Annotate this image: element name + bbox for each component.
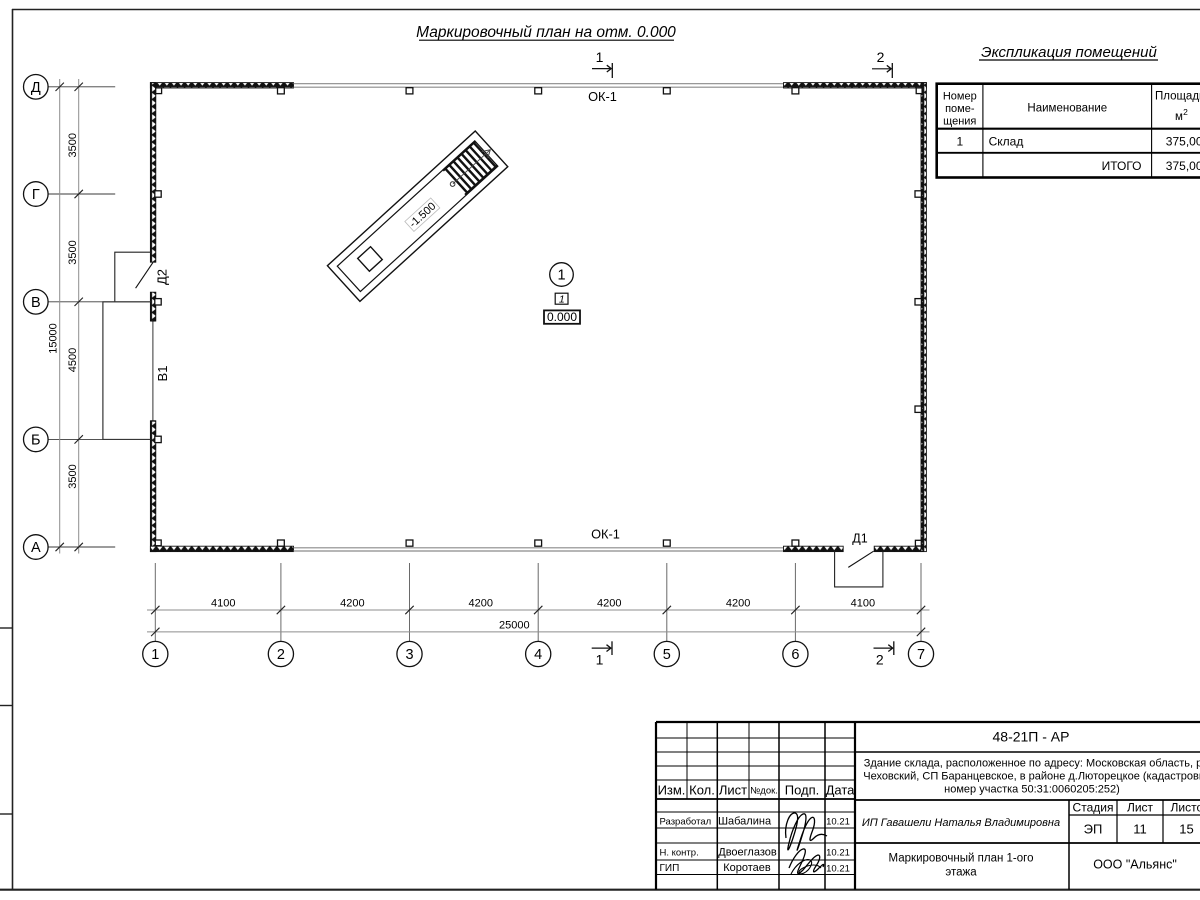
- svg-text:В1: В1: [155, 366, 170, 382]
- svg-text:щения: щения: [943, 116, 976, 128]
- svg-text:1: 1: [559, 294, 565, 306]
- svg-text:Маркировочный план 1-ого: Маркировочный план 1-ого: [889, 853, 1034, 865]
- svg-text:375,00: 375,00: [1166, 135, 1200, 149]
- svg-text:Номер: Номер: [943, 91, 977, 103]
- svg-text:поме-: поме-: [945, 103, 975, 115]
- svg-text:4100: 4100: [851, 597, 875, 609]
- svg-text:2: 2: [1183, 107, 1188, 117]
- svg-text:Изм.: Изм.: [658, 783, 686, 798]
- svg-text:Г: Г: [32, 187, 40, 203]
- svg-text:4: 4: [534, 647, 542, 663]
- svg-text:Кол.: Кол.: [689, 783, 715, 798]
- svg-text:номер участка 50:31:0060205:25: номер участка 50:31:0060205:252): [944, 783, 1120, 795]
- svg-text:Лист: Лист: [719, 783, 747, 798]
- svg-text:ИТОГО: ИТОГО: [1102, 159, 1142, 173]
- svg-text:7: 7: [917, 647, 925, 663]
- svg-text:48-21П - АР: 48-21П - АР: [993, 729, 1070, 745]
- svg-text:Склад: Склад: [989, 135, 1024, 149]
- svg-text:0.000: 0.000: [547, 310, 577, 324]
- svg-text:ГИП: ГИП: [660, 863, 680, 874]
- svg-text:Н. контр.: Н. контр.: [660, 848, 699, 859]
- svg-text:Дата: Дата: [826, 783, 856, 798]
- svg-text:10.21: 10.21: [826, 817, 850, 828]
- svg-text:3500: 3500: [67, 240, 79, 264]
- svg-text:15: 15: [1179, 822, 1193, 837]
- svg-text:4200: 4200: [726, 597, 750, 609]
- svg-text:Б: Б: [31, 433, 41, 449]
- svg-text:4200: 4200: [597, 597, 621, 609]
- svg-text:м: м: [1175, 111, 1183, 123]
- svg-text:Д1: Д1: [852, 532, 867, 546]
- svg-text:375,00: 375,00: [1166, 159, 1200, 173]
- svg-text:Д: Д: [31, 80, 41, 96]
- svg-text:ОК-1: ОК-1: [591, 527, 620, 542]
- svg-text:Площадь: Площадь: [1155, 91, 1200, 103]
- svg-text:2: 2: [277, 647, 285, 663]
- svg-text:ИП Гавашели Наталья Владимиров: ИП Гавашели Наталья Владимировна: [862, 817, 1060, 829]
- svg-text:ЭП: ЭП: [1084, 822, 1103, 837]
- svg-text:4200: 4200: [340, 597, 364, 609]
- svg-text:ОК-1: ОК-1: [588, 89, 617, 104]
- svg-text:Коротаев: Коротаев: [723, 862, 771, 874]
- svg-text:1: 1: [151, 647, 159, 663]
- svg-text:15000: 15000: [48, 323, 60, 354]
- svg-text:25000: 25000: [499, 620, 530, 632]
- svg-text:4200: 4200: [469, 597, 493, 609]
- svg-text:Экспликация помещений: Экспликация помещений: [981, 44, 1157, 61]
- svg-text:Стадия: Стадия: [1073, 801, 1114, 815]
- svg-text:3500: 3500: [67, 133, 79, 157]
- svg-text:Двоеглазов: Двоеглазов: [718, 847, 777, 859]
- svg-text:Лист: Лист: [1127, 801, 1154, 815]
- svg-text:5: 5: [663, 647, 671, 663]
- svg-text:Здание склада, расположенное п: Здание склада, расположенное по адресу: …: [864, 758, 1200, 770]
- svg-text:ООО "Альянс": ООО "Альянс": [1093, 858, 1177, 872]
- svg-text:3: 3: [405, 647, 413, 663]
- svg-text:А: А: [31, 540, 41, 556]
- svg-text:10.21: 10.21: [826, 848, 850, 859]
- svg-text:3500: 3500: [67, 464, 79, 488]
- svg-text:Д2: Д2: [155, 269, 170, 285]
- svg-text:2: 2: [877, 49, 885, 65]
- svg-text:10.21: 10.21: [826, 864, 850, 875]
- svg-text:1: 1: [956, 135, 963, 149]
- svg-text:Шабалина: Шабалина: [718, 816, 772, 828]
- svg-text:11: 11: [1133, 822, 1147, 837]
- svg-text:1: 1: [557, 268, 565, 284]
- svg-text:1: 1: [596, 49, 604, 65]
- svg-text:1: 1: [596, 652, 604, 668]
- svg-text:6: 6: [791, 647, 799, 663]
- svg-text:Чеховский, СП Баранцевское, в: Чеховский, СП Баранцевское, в районе д.Л…: [863, 771, 1200, 783]
- svg-text:Наименование: Наименование: [1027, 103, 1107, 115]
- svg-text:Листов: Листов: [1171, 801, 1200, 815]
- svg-text:этажа: этажа: [945, 867, 977, 879]
- svg-text:В: В: [31, 295, 41, 311]
- svg-text:4100: 4100: [211, 597, 235, 609]
- svg-text:№док.: №док.: [750, 786, 778, 797]
- svg-text:2: 2: [876, 652, 884, 668]
- svg-text:4500: 4500: [67, 348, 79, 372]
- svg-text:Разработал: Разработал: [660, 817, 712, 828]
- svg-text:Подп.: Подп.: [785, 783, 820, 798]
- svg-text:Маркировочный план на отм. 0.0: Маркировочный план на отм. 0.000: [416, 24, 676, 41]
